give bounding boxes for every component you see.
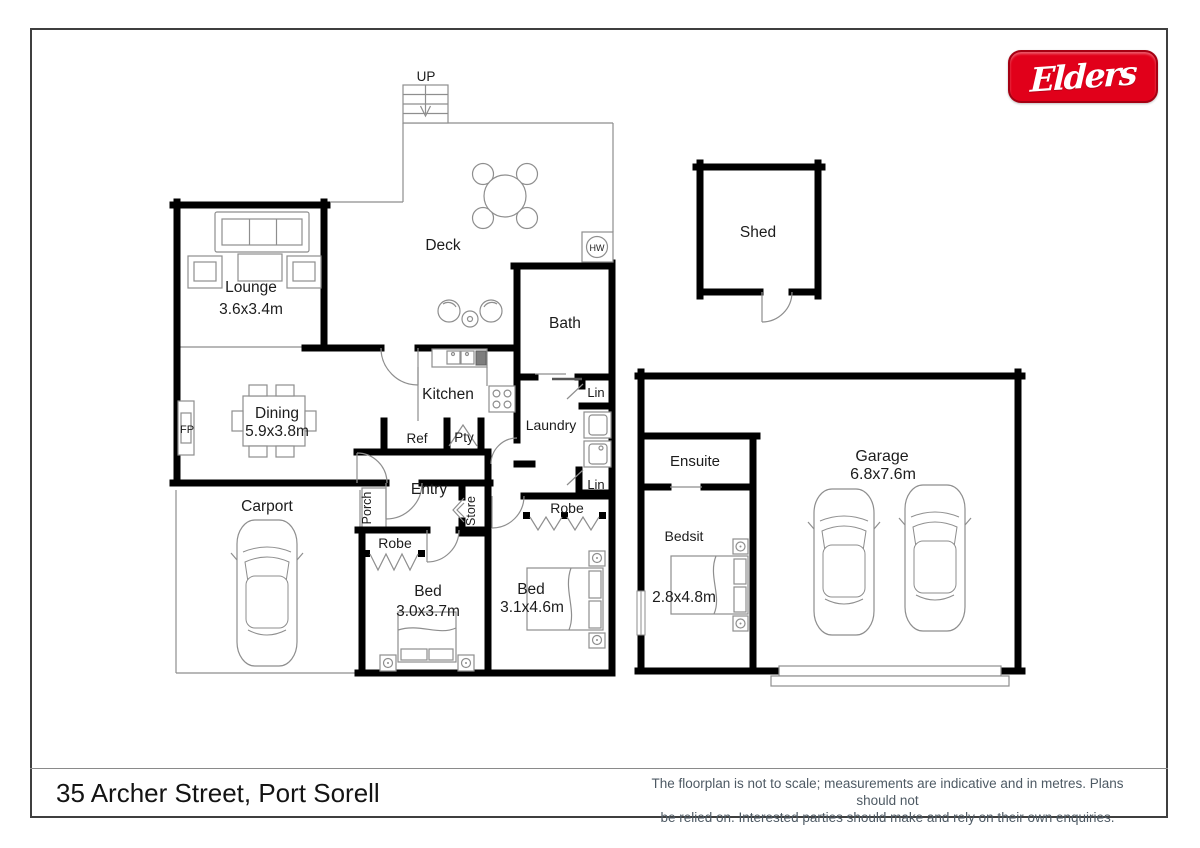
coffee-table-icon [238,254,282,281]
pantry-label: Pty [454,430,474,445]
robe-front-bifold [363,550,425,570]
fridge-label: Ref [406,431,427,446]
garage-car-left-icon [808,489,880,635]
closet-label-lin-bath: Lin [587,385,604,400]
room-label-lounge: Lounge [225,279,277,296]
stove-icon [489,386,515,412]
room-label-deck: Deck [425,237,461,254]
deck-outline [331,123,613,232]
footer-divider [30,768,1168,769]
stairs-up-label: UP [417,69,436,84]
room-label-kitchen: Kitchen [422,386,474,403]
room-label-bedsit: Bedsit [665,528,704,544]
carport-car-icon [231,520,303,666]
kitchen-sink-icon [432,349,487,367]
property-address: 35 Archer Street, Port Sorell [56,778,380,809]
room-label-ensuite: Ensuite [670,453,720,470]
room-label-bed-front: Bed [414,583,442,600]
porch-label: Porch [360,492,374,525]
deck-table-icon [473,164,538,229]
room-label-garage: Garage [855,448,908,465]
hw-label: HW [590,243,605,253]
disclaimer-line-2: be relied on. Interested parties should … [645,809,1130,826]
room-label-dining: Dining [255,405,299,422]
fireplace-label: FP [180,424,194,436]
washer-icon [584,412,611,438]
disclaimer-line-1: The floorplan is not to scale; measureme… [645,775,1130,809]
room-label-shed: Shed [740,224,776,241]
room-dim-bed-rear: 3.1x4.6m [500,599,564,616]
garage-door [771,666,1009,686]
room-dim-lounge: 3.6x3.4m [219,301,283,318]
robe-front-label: Robe [378,535,412,551]
room-dim-bed-front: 3.0x3.7m [396,603,460,620]
room-dim-bedsit: 2.8x4.8m [652,589,716,606]
bedsit-window [637,591,645,635]
store-label: Store [464,496,478,526]
sofa-icon [215,212,309,252]
patio-chairs-icon [438,300,502,327]
room-label-carport: Carport [241,498,293,515]
floorplan-canvas: UP Deck Shed HW Lounge 3.6x3.4m Bath Kit… [0,0,1200,848]
room-label-bed-rear: Bed [517,581,545,598]
floorplan-page: Elders [0,0,1200,848]
garage-car-right-icon [899,485,971,631]
bed-front-icon [380,612,474,671]
bedsit-bed-icon [671,539,748,631]
room-label-laundry: Laundry [526,417,577,433]
laundry-trough-icon [584,441,611,467]
room-dim-dining: 5.9x3.8m [245,423,309,440]
room-label-bath: Bath [549,315,581,332]
closet-label-lin-hall: Lin [587,477,604,492]
room-label-entry: Entry [411,481,447,498]
robe-rear-label: Robe [550,500,584,516]
stairs-icon [403,85,448,123]
disclaimer-text: The floorplan is not to scale; measureme… [645,775,1130,826]
room-dim-garage: 6.8x7.6m [850,466,916,483]
